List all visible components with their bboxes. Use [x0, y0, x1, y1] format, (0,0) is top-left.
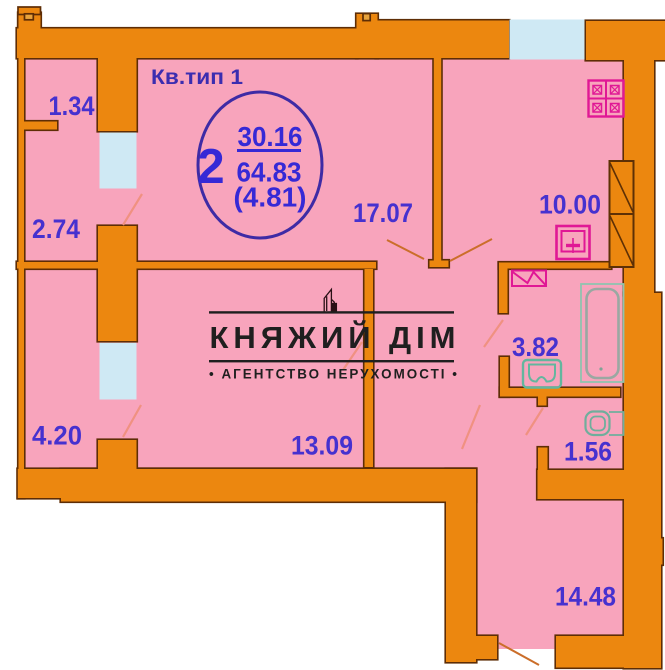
svg-text:3.82: 3.82	[512, 332, 559, 362]
svg-text:10.00: 10.00	[539, 190, 601, 220]
svg-text:14.48: 14.48	[555, 582, 616, 612]
svg-text:2.74: 2.74	[32, 214, 80, 244]
svg-text:30.16: 30.16	[238, 121, 303, 152]
svg-text:1.56: 1.56	[564, 437, 612, 467]
svg-text:(4.81): (4.81)	[234, 182, 307, 213]
svg-text:КНЯЖИЙ ДІМ: КНЯЖИЙ ДІМ	[210, 319, 456, 355]
svg-text:17.07: 17.07	[353, 198, 413, 228]
svg-text:2: 2	[197, 140, 224, 194]
svg-text:• АГЕНТСТВО НЕРУХОМОСТІ •: • АГЕНТСТВО НЕРУХОМОСТІ •	[209, 367, 457, 382]
svg-text:1.34: 1.34	[49, 91, 95, 121]
svg-text:13.09: 13.09	[291, 431, 353, 461]
svg-text:4.20: 4.20	[32, 421, 82, 451]
svg-text:Кв.тип 1: Кв.тип 1	[151, 66, 243, 89]
